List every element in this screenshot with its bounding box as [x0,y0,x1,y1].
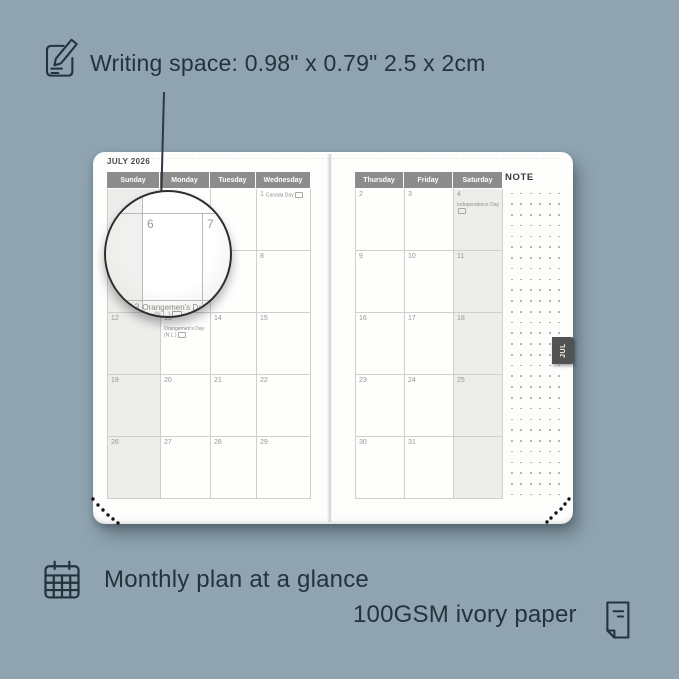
day-number: 16 [359,315,367,323]
calendar-day-cell: 12 [108,313,161,375]
day-number: 31 [408,439,416,447]
calendar-day-cell: 31 [405,437,454,499]
day-number: 22 [260,377,268,385]
calendar-day-cell: 22 [257,375,311,437]
magnifier-circle: 6 7 13Orangemen's Day (N.L.) [104,190,232,318]
calendar-day-cell: 16 [356,313,405,375]
day-number: 27 [164,439,172,447]
calendar-day-cell: 13Orangemen's Day (N.L.) [161,313,211,375]
day-number: 2 [359,191,363,199]
calendar-day-cell: 30 [356,437,405,499]
weekday-header: Thursday [355,172,404,188]
calendar-day-cell: 28 [211,437,257,499]
day-number: 8 [260,253,264,261]
page-edge [107,158,559,159]
day-number: 11 [457,253,464,261]
weekday-header: Friday [404,172,453,188]
day-number: 24 [408,377,416,385]
calendar-day-cell: 2 [356,189,405,251]
calendar-day-cell: 15 [257,313,311,375]
day-number: 12 [111,315,119,323]
day-number: 21 [214,377,222,385]
paper-icon [596,597,638,643]
calendar-day-cell [454,437,503,499]
calendar-table-right: ThursdayFridaySaturday234Independence Da… [355,172,502,499]
calendar-day-cell: 18 [454,313,503,375]
calendar-day-cell: 14 [211,313,257,375]
day-number: 18 [457,315,465,323]
calendar-day-cell: 3 [405,189,454,251]
weekday-header: Saturday [453,172,502,188]
magnified-grid-line [142,192,143,316]
day-number: 26 [111,439,119,447]
calendar-day-cell: 1Canada Day [257,189,311,251]
calendar-day-cell: 25 [454,375,503,437]
holiday-label: Orangemen's Day (N.L.) [164,325,208,338]
calendar-day-cell: 4Independence Day [454,189,503,251]
day-number: 28 [214,439,222,447]
holiday-label: Independence Day [457,201,500,214]
calendar-day-cell: 29 [257,437,311,499]
product-image: { "background_color": "#8fa4b0", "annota… [0,0,679,679]
day-number: 15 [260,315,268,323]
note-label: NOTE [505,172,534,183]
day-number: 23 [359,377,367,385]
calendar-day-cell: 24 [405,375,454,437]
weekday-header: Monday [160,172,210,188]
day-number: 9 [359,253,363,261]
magnified-grid-line [120,300,230,301]
weekday-header: Tuesday [210,172,256,188]
paper-text: 100GSM ivory paper [353,601,577,629]
magnified-sunday-shade [106,192,142,316]
day-number: 20 [164,377,172,385]
calendar-day-cell: 21 [211,375,257,437]
weekday-header: Wednesday [256,172,310,188]
holiday-flag-icon [295,192,303,198]
month-title: JULY 2026 [107,157,150,166]
day-number: 1 [260,191,264,199]
calendar-day-cell: 26 [108,437,161,499]
calendar-day-cell: 27 [161,437,211,499]
day-number: 29 [260,439,268,447]
day-number: 14 [214,315,222,323]
day-number: 4 [457,191,461,199]
monthly-plan-text: Monthly plan at a glance [104,566,369,594]
calendar-day-cell: 17 [405,313,454,375]
magnified-grid-line [106,213,230,214]
holiday-label: Canada Day [266,191,303,198]
day-number: 30 [359,439,367,447]
magnified-day-number: 7 [207,217,214,231]
day-number: 3 [408,191,412,199]
calendar-day-cell: 8 [257,251,311,313]
magnified-day-number: 6 [147,217,154,231]
pencil-note-icon [40,35,82,83]
calendar-day-cell: 9 [356,251,405,313]
holiday-flag-icon [178,332,186,338]
calendar-day-cell: 23 [356,375,405,437]
calendar-day-cell: 11 [454,251,503,313]
calendar-day-cell: 19 [108,375,161,437]
day-number: 19 [111,377,119,385]
weekday-header: Sunday [107,172,160,188]
day-number: 10 [408,253,416,261]
month-tab: JUL [552,337,574,364]
calendar-day-cell: 20 [161,375,211,437]
book-gutter-line [330,154,331,522]
day-number: 25 [457,377,465,385]
calendar-day-cell: 10 [405,251,454,313]
writing-space-text: Writing space: 0.98" x 0.79" 2.5 x 2cm [90,50,486,77]
month-tab-label: JUL [559,343,566,358]
calendar-grid-icon [40,557,84,603]
day-number: 17 [408,315,416,323]
holiday-flag-icon [458,208,466,214]
